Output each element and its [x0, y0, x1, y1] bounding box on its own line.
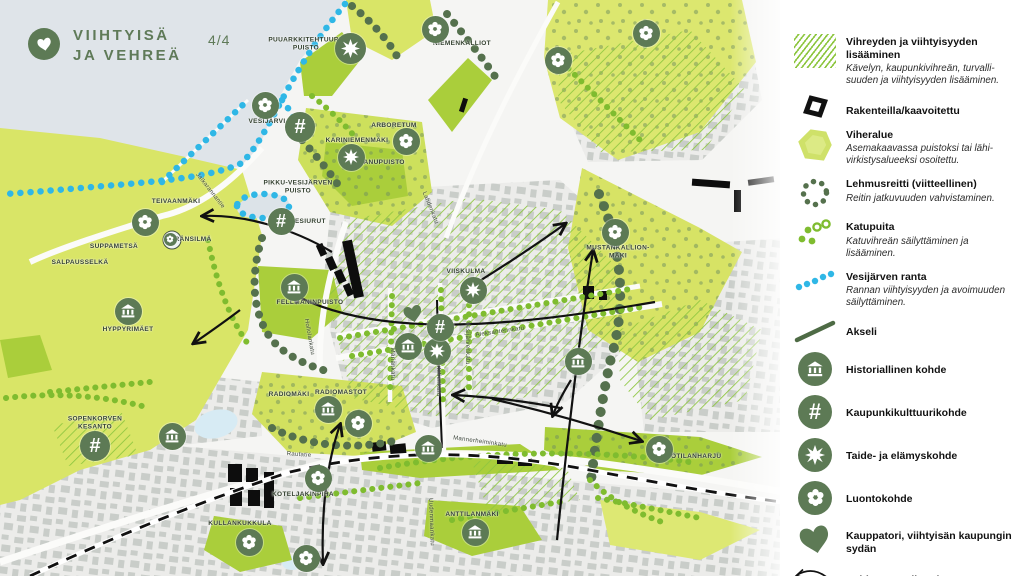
- legend-item-art: Taide- ja elämyskohde: [790, 440, 1016, 472]
- legend-desc: Asemakaavassa puistoksi tai lähi­virkist…: [846, 143, 1016, 167]
- legend-item-akseli: Akseli: [790, 321, 1016, 343]
- map-graphic: [0, 0, 790, 576]
- street-trees-swatch: [790, 219, 840, 247]
- legend-title: Luontokohde: [846, 493, 913, 506]
- vision-map-page: PUUARKKITEHTUURI- PUISTONIEMENKALLIOTVES…: [0, 0, 1024, 576]
- green-connection-arrow-icon: [790, 565, 840, 576]
- title-line-1: VIIHTYISÄ: [73, 26, 182, 46]
- page-title: VIIHTYISÄ JA VEHREÄ: [28, 26, 182, 67]
- legend-title: Rakenteilla/kaavoitettu: [846, 105, 960, 118]
- legend-title: Taide- ja elämyskohde: [846, 450, 957, 463]
- legend-desc: Rannan viihtyisyyden ja avoimuuden säily…: [846, 285, 1016, 309]
- legend-item-green-area: Viheralue Asemakaavassa puistoksi tai lä…: [790, 129, 1016, 168]
- legend-item-ranta: Vesijärven ranta Rannan viihtyisyyden ja…: [790, 271, 1016, 310]
- nature-site-icon: [790, 481, 840, 515]
- green-hatch-swatch: [790, 34, 840, 68]
- legend-item-culture: # Kaupunkikulttuurikohde: [790, 397, 1016, 429]
- axis-line-swatch: [790, 319, 840, 343]
- legend-title: Katupuita: [846, 221, 1016, 234]
- blue-dots-swatch: [790, 269, 840, 291]
- under-construction-swatch: [790, 97, 840, 116]
- page-indicator: 4/4: [208, 32, 230, 48]
- green-area-swatch: [790, 127, 840, 163]
- legend-title: Viheralue: [846, 129, 1016, 142]
- legend-title: Lehmusreitti (viitteellinen): [846, 178, 995, 191]
- legend-item-nature: Luontokohde: [790, 483, 1016, 515]
- legend-item-kauppatori: Kauppatori, viihtyisän kaupungin sydän: [790, 526, 1016, 556]
- legend-desc: Kävelyn, kaupunkivihreän, turvalli­suude…: [846, 63, 1016, 87]
- legend-item-greening: Vihreyden ja viihtyisyyden lisääminen Kä…: [790, 36, 1016, 88]
- legend-item-construction: Rakenteilla/kaavoitettu: [790, 99, 1016, 118]
- heart-icon: [28, 28, 60, 60]
- map-canvas: PUUARKKITEHTUURI- PUISTONIEMENKALLIOTVES…: [0, 0, 790, 576]
- legend-desc: Reitin jatkuvuuden vahvistaminen.: [846, 193, 995, 205]
- legend-title: Vihreyden ja viihtyisyyden lisääminen: [846, 36, 1016, 62]
- dotted-loop-swatch: [790, 176, 840, 210]
- market-heart-icon: [790, 524, 840, 556]
- legend-title: Kaupunkikulttuurikohde: [846, 407, 967, 420]
- legend-item-lehmusreitti: Lehmusreitti (viitteellinen) Reitin jatk…: [790, 178, 1016, 210]
- legend-panel: Vihreyden ja viihtyisyyden lisääminen Kä…: [780, 0, 1024, 576]
- legend-item-viheryhteys: Kehitettävä viheryhteys: [790, 567, 1016, 576]
- art-experience-icon: [790, 438, 840, 472]
- urban-culture-icon: #: [790, 395, 840, 429]
- legend-title: Vesijärven ranta: [846, 271, 1016, 284]
- legend-desc: Katuvihreän säilyttäminen ja lisääminen.: [846, 236, 1016, 260]
- legend-title: Kauppatori, viihtyisän kaupungin sydän: [846, 530, 1016, 556]
- legend-item-historic: Historiallinen kohde: [790, 354, 1016, 386]
- historic-site-icon: [790, 352, 840, 386]
- legend-title: Akseli: [846, 326, 877, 339]
- title-line-2: JA VEHREÄ: [73, 46, 182, 66]
- legend-title: Historiallinen kohde: [846, 364, 946, 377]
- legend-item-katupuita: Katupuita Katuvihreän säilyttäminen ja l…: [790, 221, 1016, 260]
